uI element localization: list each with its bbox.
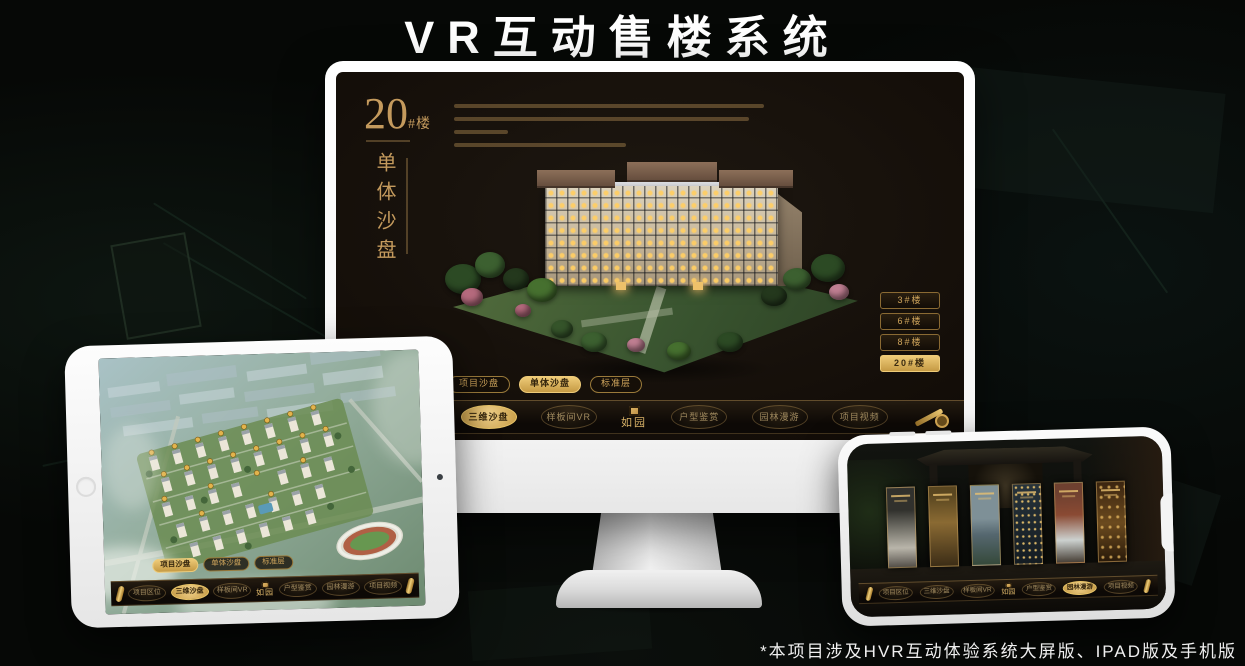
scroll-roller-icon[interactable] bbox=[1143, 578, 1151, 593]
blossom-tree bbox=[461, 288, 483, 306]
scroll-roller-icon[interactable] bbox=[405, 577, 415, 594]
tab-single-sandtable[interactable]: 单体沙盘 bbox=[519, 376, 581, 393]
headline-subtitle-vertical: 单体沙盘 bbox=[370, 152, 399, 268]
scene-panel[interactable] bbox=[1096, 481, 1127, 563]
blossom-tree bbox=[515, 304, 531, 317]
monitor-stand-neck bbox=[592, 513, 722, 575]
phone-volume-button bbox=[925, 431, 951, 436]
nav-item-3d-sandtable[interactable]: 三维沙盘 bbox=[461, 405, 517, 429]
phone-screen: 项目区位 三维沙盘 样板间VR 如园 户型鉴赏 园林漫游 项目视频 bbox=[847, 436, 1167, 618]
scene-panel[interactable] bbox=[1012, 483, 1043, 565]
footnote: *本项目涉及HVR互动体验系统大屏版、IPAD版及手机版 bbox=[760, 637, 1237, 662]
phone-nav-item-floorplans[interactable]: 户型鉴赏 bbox=[1022, 581, 1056, 596]
tree bbox=[811, 254, 845, 282]
scroll-roller-icon[interactable] bbox=[115, 585, 125, 602]
floor-button-3[interactable]: 3#楼 bbox=[880, 292, 940, 309]
entrance-light bbox=[616, 282, 626, 290]
brand-logo-text: 如园 bbox=[256, 589, 274, 597]
ipad-screen: 项目沙盘 单体沙盘 标准层 项目区位 三维沙盘 样板间VR 如园 户型鉴赏 园林… bbox=[98, 350, 425, 615]
stage: VR互动售楼系统 20#楼 单体沙盘 bbox=[0, 0, 1245, 666]
scroll-brush-icon[interactable] bbox=[912, 404, 952, 430]
ipad-nav-item-location[interactable]: 项目区位 bbox=[128, 584, 166, 601]
nav-item-project-video[interactable]: 项目视频 bbox=[832, 405, 888, 429]
ipad-nav-item-3d-sandtable[interactable]: 三维沙盘 bbox=[170, 583, 208, 600]
scene-panel[interactable] bbox=[928, 485, 959, 567]
tree bbox=[503, 268, 529, 290]
ipad-nav-item-floorplans[interactable]: 户型鉴赏 bbox=[279, 580, 317, 597]
headline-english-deco bbox=[366, 140, 410, 142]
brand-logo-text: 如园 bbox=[1001, 589, 1015, 596]
brand-logo-text: 如园 bbox=[621, 418, 647, 429]
headline-building-number: 20#楼 bbox=[364, 92, 431, 136]
ipad-tab-project-sandtable[interactable]: 项目沙盘 bbox=[152, 558, 198, 573]
blossom-tree bbox=[829, 284, 849, 300]
tree bbox=[717, 332, 743, 352]
ipad-tab-standard-floor[interactable]: 标准层 bbox=[254, 555, 293, 570]
scene-panel[interactable] bbox=[1054, 482, 1085, 564]
phone-nav-item-3d-sandtable[interactable]: 三维沙盘 bbox=[919, 584, 953, 599]
tree bbox=[551, 320, 573, 338]
scene-gallery bbox=[848, 480, 1165, 570]
phone-frame: 项目区位 三维沙盘 样板间VR 如园 户型鉴赏 园林漫游 项目视频 bbox=[837, 426, 1175, 626]
ipad-home-button bbox=[76, 477, 97, 498]
monitor-stand-base bbox=[556, 570, 762, 608]
floor-button-20[interactable]: 20#楼 bbox=[880, 355, 940, 372]
tree bbox=[761, 286, 787, 306]
tree bbox=[581, 332, 607, 352]
tab-project-sandtable[interactable]: 项目沙盘 bbox=[448, 376, 510, 393]
blossom-tree bbox=[627, 338, 645, 352]
building-facade bbox=[545, 186, 778, 286]
nav-item-showroom-vr[interactable]: 样板间VR bbox=[541, 405, 597, 429]
description-line bbox=[454, 130, 508, 134]
mode-tabs: 项目沙盘 单体沙盘 标准层 bbox=[448, 376, 642, 393]
phone-volume-button bbox=[889, 432, 915, 437]
entrance-light bbox=[693, 282, 703, 290]
tree bbox=[783, 268, 811, 290]
ipad-nav-item-garden-roam[interactable]: 园林漫游 bbox=[321, 579, 359, 596]
brand-logo: 如园 bbox=[621, 406, 647, 429]
tab-standard-floor[interactable]: 标准层 bbox=[590, 376, 642, 393]
ipad-nav-item-project-video[interactable]: 项目视频 bbox=[364, 578, 402, 595]
headline-vertical-deco bbox=[406, 158, 408, 254]
scroll-roller-icon[interactable] bbox=[865, 586, 873, 601]
phone-nav-item-location[interactable]: 项目区位 bbox=[878, 585, 912, 600]
headline-unit-text: #楼 bbox=[408, 117, 431, 132]
building-roof bbox=[537, 170, 615, 188]
nav-item-garden-roam[interactable]: 园林漫游 bbox=[752, 405, 808, 429]
description-line bbox=[454, 104, 764, 108]
building-roof bbox=[719, 170, 793, 188]
description-line bbox=[454, 117, 749, 121]
building-selector: 3#楼 6#楼 8#楼 20#楼 bbox=[880, 292, 940, 376]
background-picture-frame bbox=[110, 232, 202, 340]
headline-number-text: 20 bbox=[364, 89, 408, 138]
phone-nav-item-showroom-vr[interactable]: 样板间VR bbox=[960, 583, 994, 598]
tree bbox=[527, 278, 557, 302]
ipad-tab-single-sandtable[interactable]: 单体沙盘 bbox=[203, 556, 249, 571]
building-render bbox=[431, 136, 871, 398]
brand-logo: 如园 bbox=[1001, 583, 1015, 596]
ipad-nav-item-showroom-vr[interactable]: 样板间VR bbox=[213, 582, 251, 599]
scene-panel[interactable] bbox=[970, 484, 1001, 566]
seal-icon bbox=[629, 406, 640, 416]
nav-item-floorplans[interactable]: 户型鉴赏 bbox=[671, 405, 727, 429]
phone-nav-item-garden-roam[interactable]: 园林漫游 bbox=[1063, 580, 1097, 595]
tree bbox=[667, 342, 691, 360]
brand-logo: 如园 bbox=[256, 582, 274, 597]
ipad-camera bbox=[437, 474, 443, 480]
tree bbox=[475, 252, 505, 278]
ipad-frame: 项目沙盘 单体沙盘 标准层 项目区位 三维沙盘 样板间VR 如园 户型鉴赏 园林… bbox=[64, 336, 460, 629]
phone-notch bbox=[1160, 493, 1174, 551]
building-roof bbox=[627, 162, 717, 182]
page-title: VR互动售楼系统 bbox=[0, 1, 1245, 66]
floor-button-6[interactable]: 6#楼 bbox=[880, 313, 940, 330]
floor-button-8[interactable]: 8#楼 bbox=[880, 334, 940, 351]
phone-nav-item-project-video[interactable]: 项目视频 bbox=[1104, 579, 1138, 594]
scene-panel[interactable] bbox=[886, 487, 917, 569]
